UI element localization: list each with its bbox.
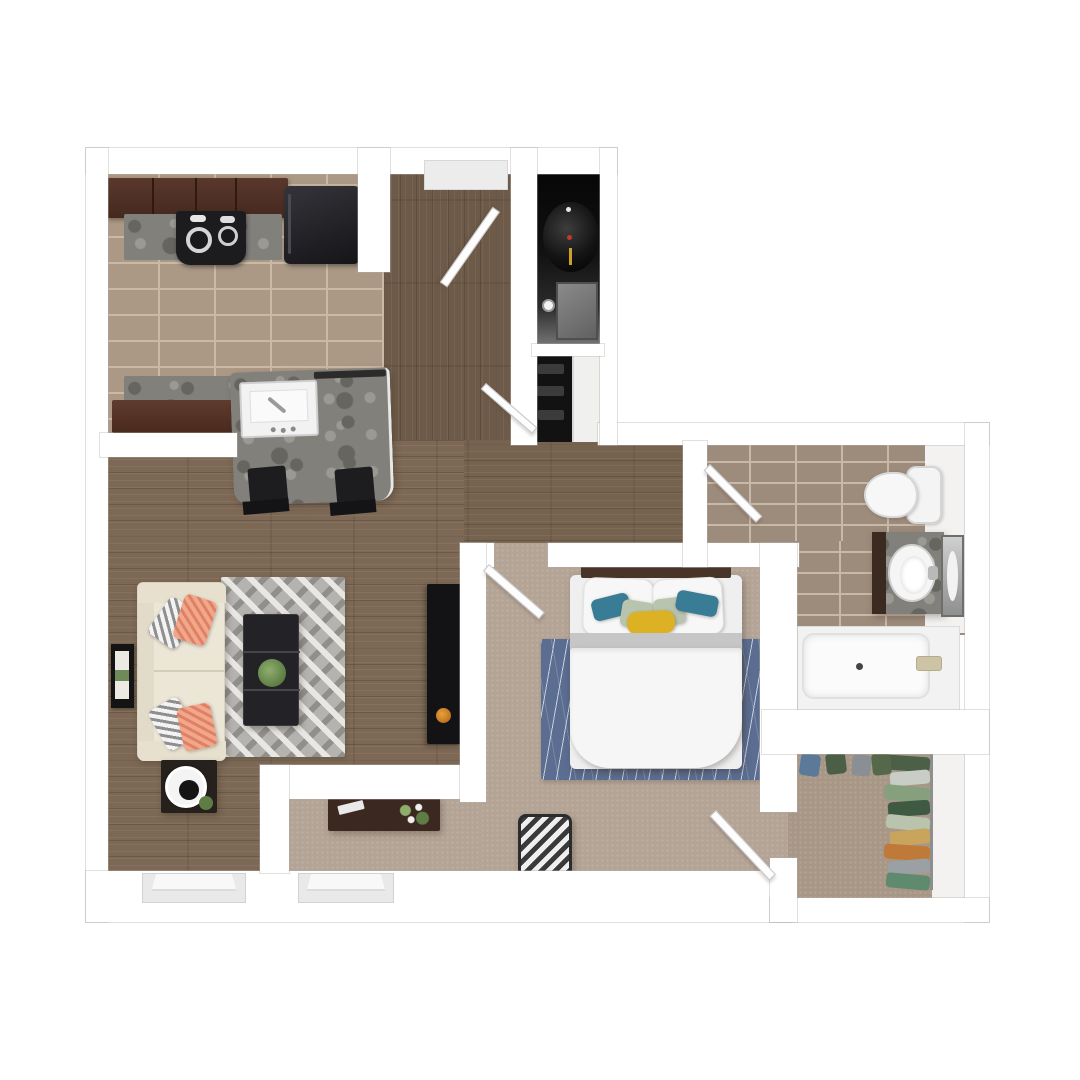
toilet-bowl	[864, 472, 918, 518]
nook-window	[298, 873, 394, 903]
sofa	[137, 582, 225, 760]
heater-indicator	[566, 207, 571, 212]
desk	[328, 797, 440, 831]
faucet-handle	[271, 427, 276, 432]
desk-keyboard	[337, 800, 364, 815]
vanity	[872, 532, 944, 614]
wall-utility-right	[600, 148, 617, 445]
wall-art-canvas	[115, 651, 129, 699]
window-pane	[307, 874, 386, 891]
heater-indicator	[567, 235, 572, 240]
wall-left	[86, 148, 108, 922]
hvac-unit	[556, 282, 598, 340]
sofa-back	[138, 583, 154, 761]
closet-rod	[930, 752, 933, 890]
wall-top	[86, 148, 617, 174]
wall-tub-closet	[762, 710, 989, 754]
hanging-clothes	[799, 753, 822, 778]
wall-nook-top	[260, 765, 482, 799]
burner	[186, 227, 212, 253]
refrigerator-handle	[288, 194, 291, 254]
wall-bedroom-right	[760, 543, 797, 812]
accent-pillow-yellow	[626, 610, 675, 635]
hanging-clothes	[825, 752, 847, 775]
bathtub-deck	[797, 626, 960, 718]
wall-kitchen-stub	[358, 148, 390, 272]
closet-shelf-item	[536, 386, 564, 396]
closet-shelf-item	[538, 364, 564, 374]
wall-art	[111, 644, 134, 708]
hanging-clothes	[871, 752, 892, 776]
tv-console	[427, 584, 461, 744]
closet-shelf-item	[538, 410, 564, 420]
shutoff-valve	[542, 299, 555, 312]
closet-side-panel	[932, 745, 966, 905]
range-cooktop	[176, 211, 246, 265]
wall-right-section-bottom	[770, 898, 989, 922]
tub-faucet	[916, 656, 942, 671]
wall-right-section-top	[598, 423, 989, 445]
bathtub	[802, 633, 930, 699]
kitchen-sink	[239, 380, 319, 439]
vanity-faucet	[928, 566, 938, 580]
wall-living-nook-divider	[260, 765, 289, 873]
faucet-handle	[281, 428, 286, 433]
console-logo	[436, 708, 451, 723]
sink-basin	[900, 556, 928, 594]
window-pane	[151, 874, 237, 891]
entry-threshold	[424, 160, 508, 190]
table-seam	[244, 651, 300, 653]
burner	[220, 216, 235, 223]
mirror-reflection	[947, 551, 958, 601]
faucet-handle	[291, 426, 296, 431]
wall-right-outer	[965, 423, 989, 922]
desk-plant	[394, 798, 432, 829]
wall-kitchen-living	[100, 433, 237, 457]
potted-plant	[258, 659, 286, 687]
tub-drain	[856, 663, 863, 670]
hanging-clothes	[851, 754, 872, 777]
living-room-window	[142, 873, 246, 903]
burner	[190, 215, 206, 222]
sofa-cushion-seam	[154, 670, 224, 672]
sofa-arm	[138, 583, 226, 603]
refrigerator	[284, 186, 360, 264]
wall-closet-left	[770, 858, 797, 922]
wall-corridor-bathroom	[683, 441, 707, 567]
floor-plan	[0, 0, 1080, 1080]
burner	[218, 226, 238, 246]
cabinet-divider	[152, 178, 154, 218]
wall-utility-left	[511, 148, 537, 445]
heater-pipe	[569, 248, 572, 265]
duvet	[570, 648, 742, 768]
table-seam	[244, 689, 300, 691]
vanity-mirror	[941, 535, 964, 617]
lamp-center	[179, 780, 199, 800]
lower-cabinets	[112, 400, 233, 433]
side-table	[161, 760, 217, 813]
wall-living-bedroom	[460, 543, 486, 802]
water-heater	[543, 202, 599, 272]
wall-closet-divider	[532, 344, 604, 356]
island-edge-trim	[314, 369, 386, 379]
vanity-cabinet-edge	[872, 532, 886, 614]
coat-closet-interior	[532, 352, 604, 442]
small-plant	[199, 796, 213, 810]
coffee-table	[243, 614, 299, 726]
